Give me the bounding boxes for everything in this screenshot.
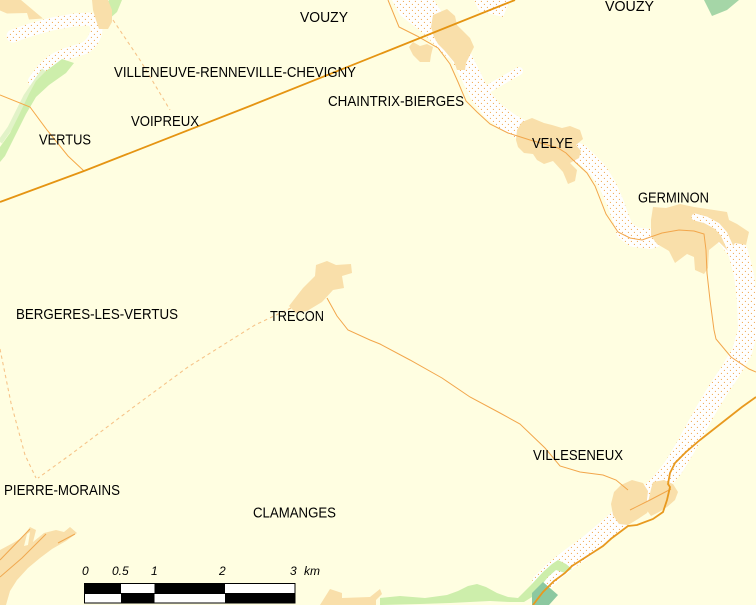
svg-text:VOUZY: VOUZY [300, 10, 348, 26]
svg-text:VOIPREUX: VOIPREUX [131, 114, 199, 130]
svg-text:0.5: 0.5 [112, 564, 129, 578]
svg-text:VOUZY: VOUZY [605, 0, 654, 15]
svg-text:GERMINON: GERMINON [638, 191, 709, 207]
svg-text:km: km [304, 564, 320, 578]
svg-text:CHAINTRIX-BIERGES: CHAINTRIX-BIERGES [328, 94, 464, 110]
svg-text:2: 2 [218, 564, 226, 578]
svg-text:VERTUS: VERTUS [39, 133, 91, 149]
svg-text:3: 3 [290, 564, 297, 578]
svg-text:PIERRE-MORAINS: PIERRE-MORAINS [4, 483, 120, 499]
svg-text:VILLESENEUX: VILLESENEUX [533, 448, 623, 464]
svg-text:0: 0 [82, 564, 89, 578]
svg-text:TRECON: TRECON [270, 309, 324, 325]
svg-text:BERGERES-LES-VERTUS: BERGERES-LES-VERTUS [16, 307, 178, 323]
svg-text:1: 1 [151, 564, 158, 578]
svg-text:VILLENEUVE-RENNEVILLE-CHEVIGNY: VILLENEUVE-RENNEVILLE-CHEVIGNY [114, 65, 356, 81]
svg-text:CLAMANGES: CLAMANGES [253, 506, 336, 522]
svg-text:VELYE: VELYE [532, 136, 573, 152]
